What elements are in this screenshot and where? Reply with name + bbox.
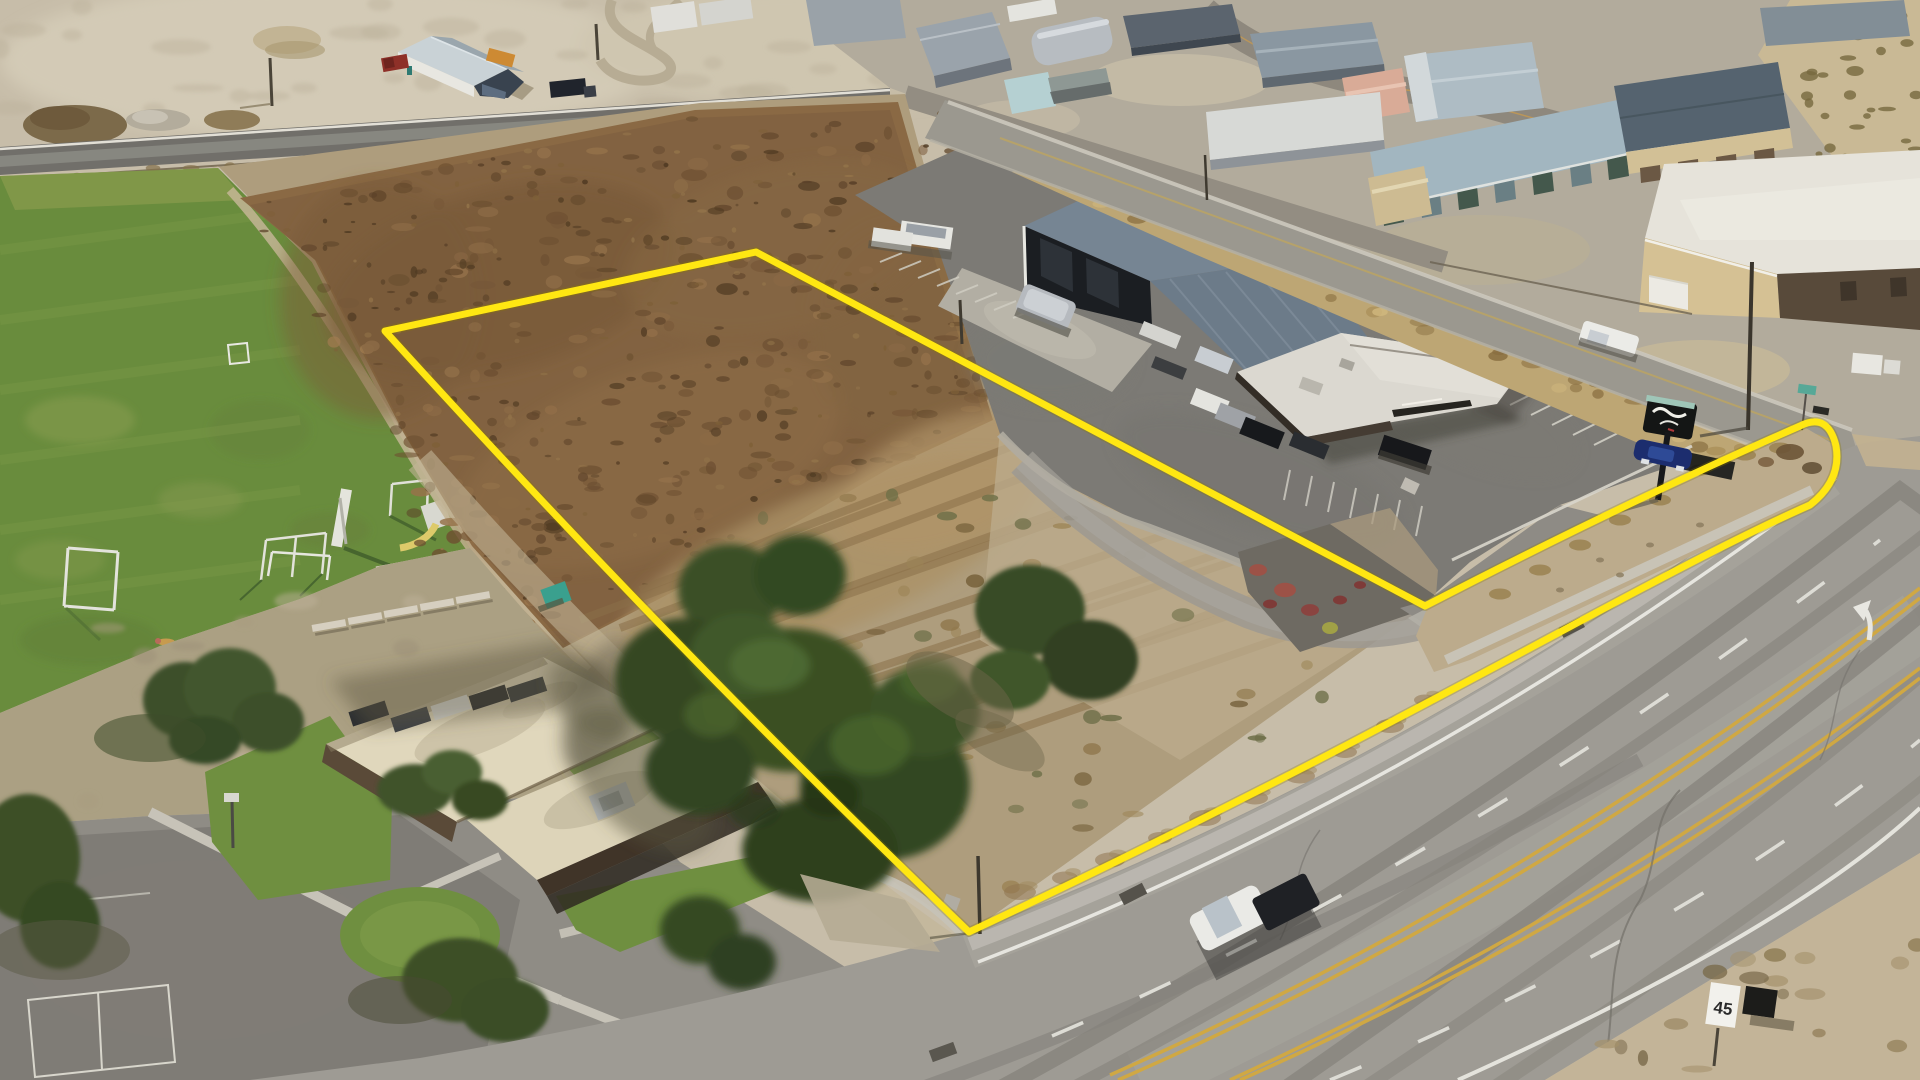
- svg-text:45: 45: [1712, 998, 1733, 1019]
